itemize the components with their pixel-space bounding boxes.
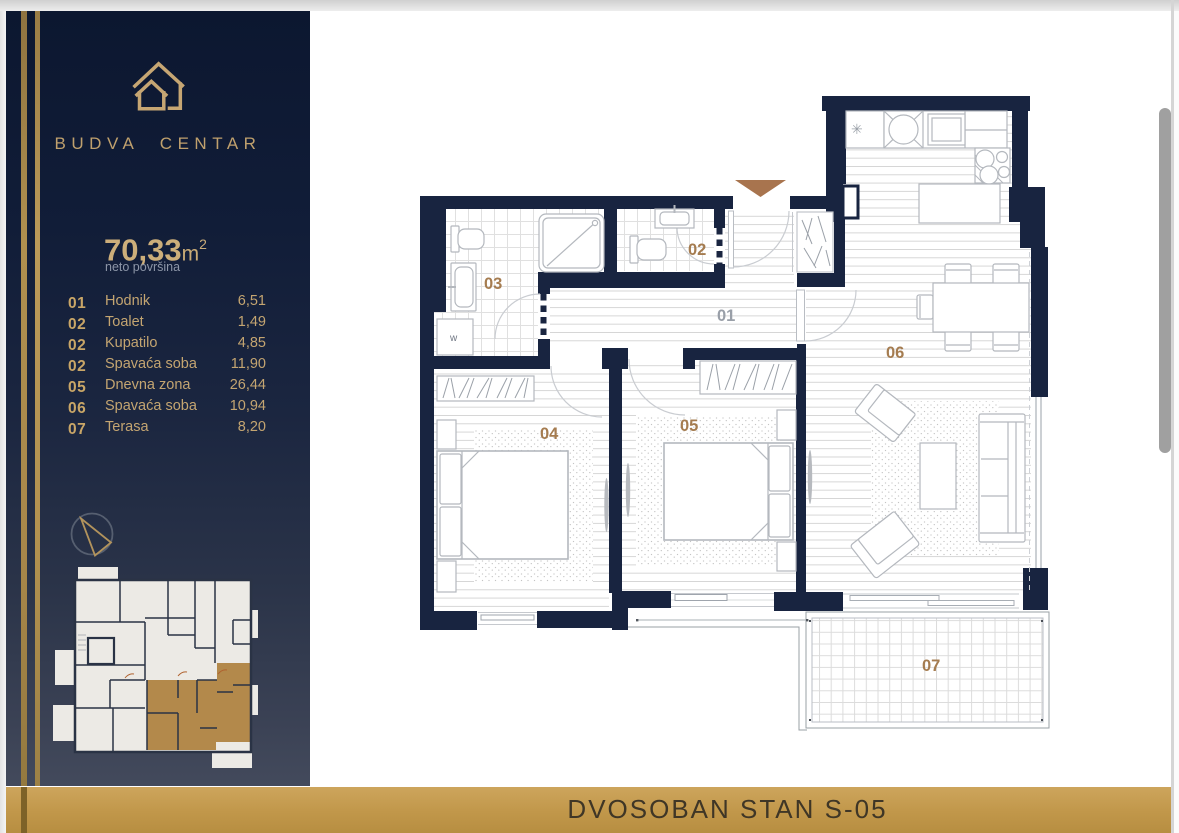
svg-text:✳: ✳ [851, 121, 863, 137]
svg-text:04: 04 [540, 425, 559, 443]
svg-text:w: w [449, 333, 458, 344]
svg-text:05: 05 [680, 417, 698, 435]
svg-text:03: 03 [484, 275, 502, 293]
svg-text:02: 02 [688, 241, 706, 259]
svg-text:01: 01 [717, 307, 735, 325]
svg-text:07: 07 [922, 657, 940, 675]
svg-text:06: 06 [886, 344, 904, 362]
